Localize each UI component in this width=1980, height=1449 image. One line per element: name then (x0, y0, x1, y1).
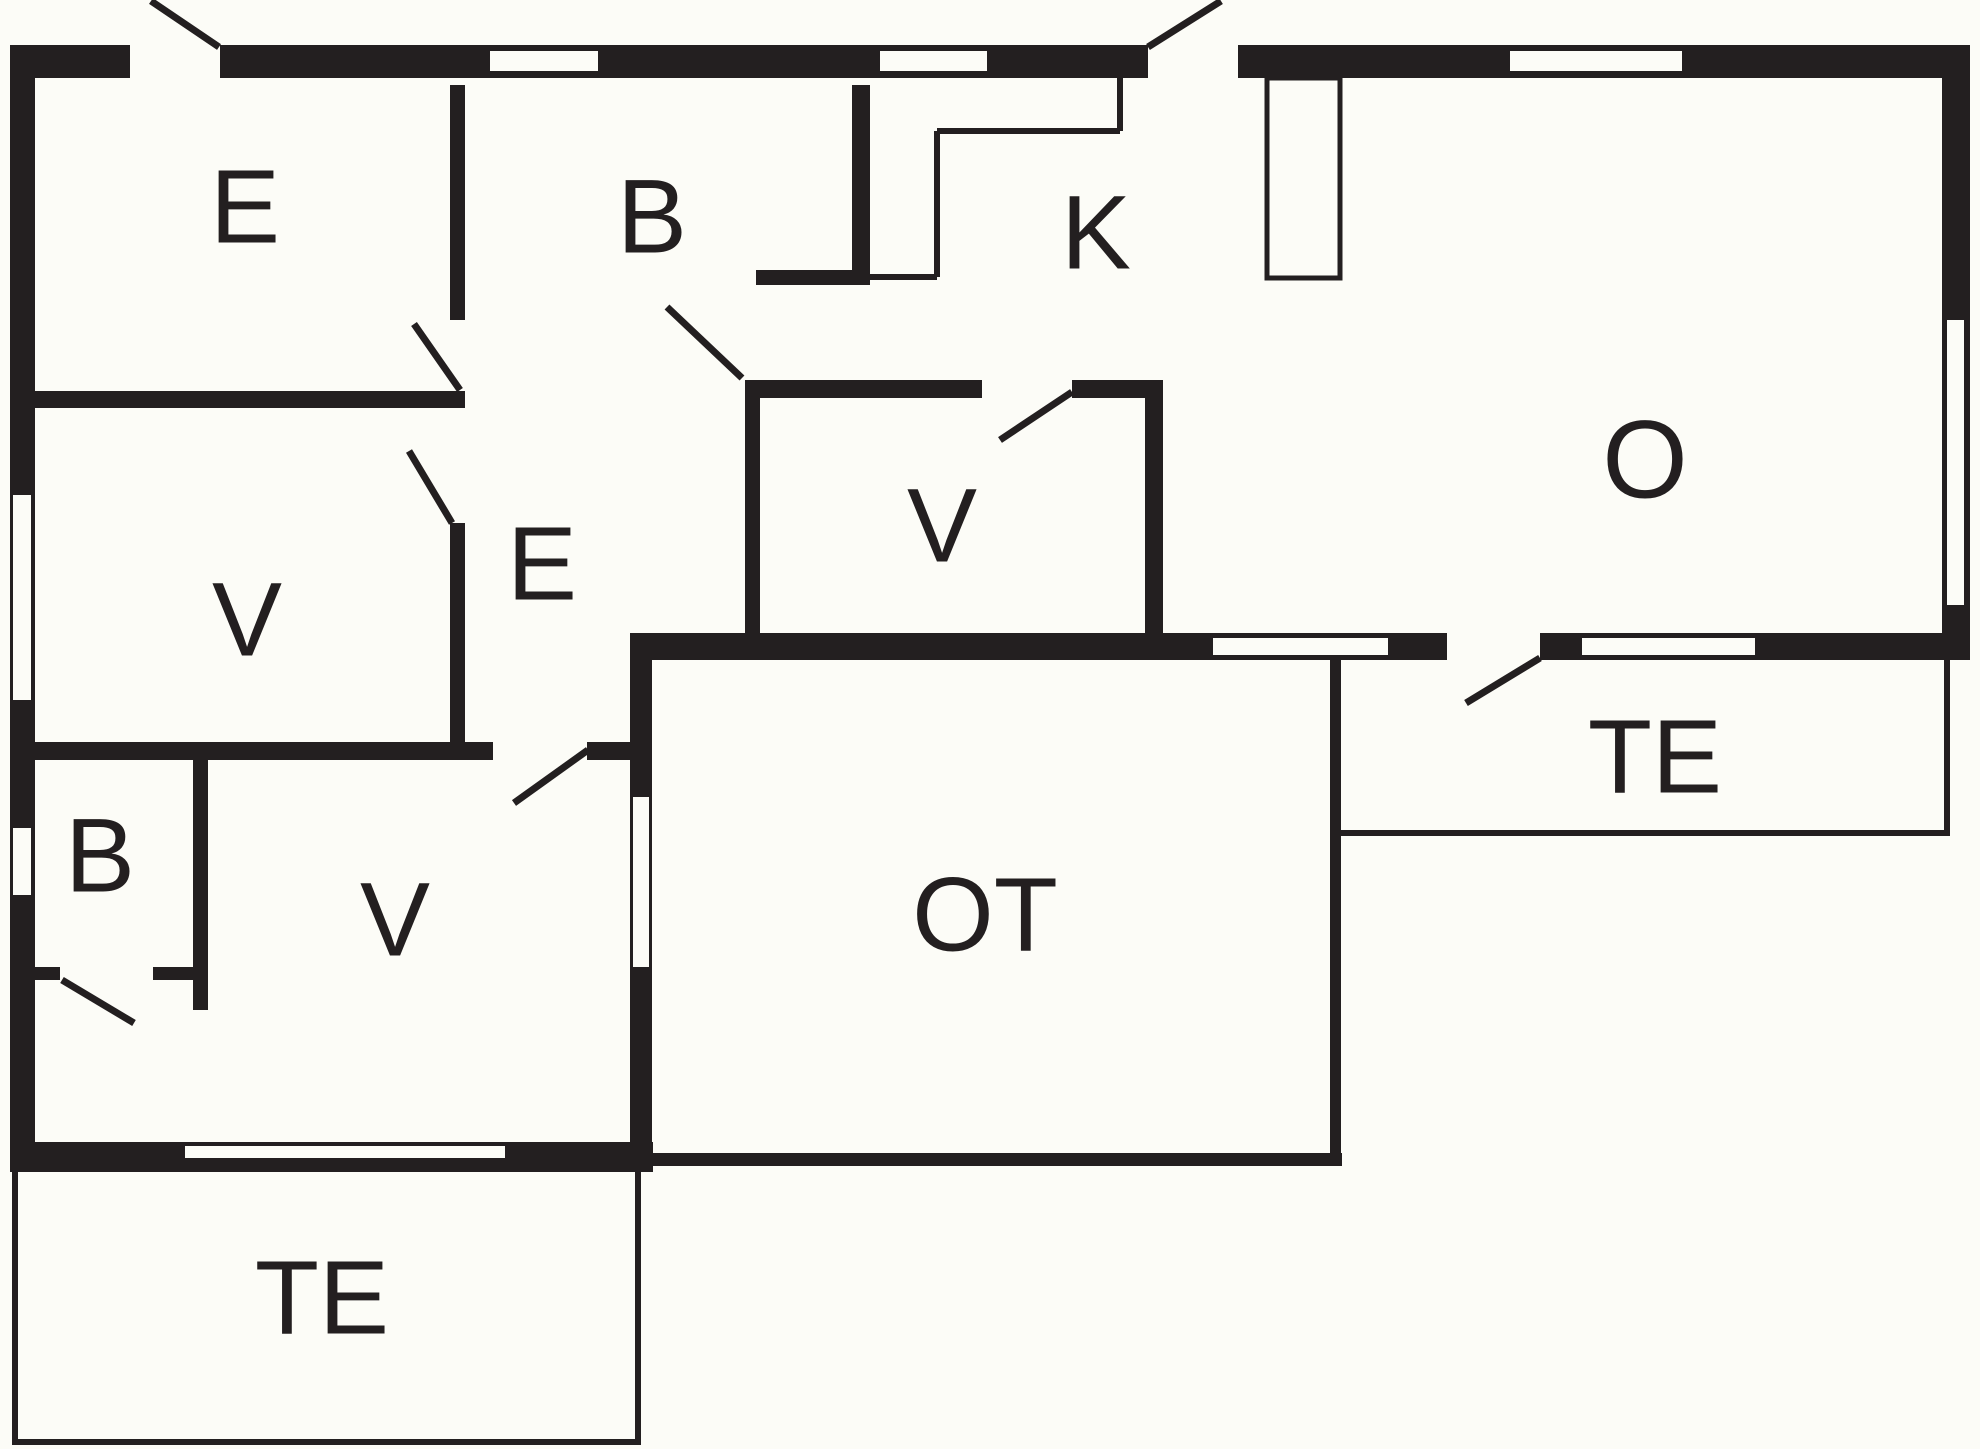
wall-segment (745, 380, 760, 633)
room-label-living-room: O (1602, 399, 1688, 522)
wall-segment (450, 523, 465, 742)
floorplan-page: EBKOVEVTEBVOTTE (0, 0, 1980, 1449)
window (1947, 320, 1964, 605)
window (490, 51, 598, 71)
wall-segment (745, 380, 982, 398)
room-label-bath-top: B (617, 159, 687, 276)
wall-segment (1145, 380, 1163, 633)
kitchen-island-counter (1267, 78, 1340, 278)
room-label-entrance-top: E (210, 149, 280, 266)
wall-segment (220, 45, 1148, 78)
room-label-bedroom-bottom: V (360, 862, 430, 979)
wall-segment (852, 85, 870, 285)
wall-segment (1330, 660, 1341, 1166)
wall-segment (25, 742, 493, 760)
wall-segment (652, 1153, 1342, 1166)
window (13, 495, 31, 700)
wall-segment (756, 270, 870, 285)
window (1510, 51, 1682, 71)
room-label-terrace-right: TE (1588, 699, 1722, 816)
room-label-terrace-bottom: TE (255, 1240, 389, 1357)
room-label-bath-bottom: B (65, 798, 135, 915)
room-label-bedroom-mid: V (907, 468, 977, 585)
floorplan-drawing: EBKOVEVTEBVOTTE (0, 0, 1980, 1449)
window (1213, 638, 1388, 655)
window (1582, 638, 1755, 655)
window (880, 51, 987, 71)
wall-segment (25, 391, 465, 408)
room-label-hallway: E (507, 506, 577, 623)
window (185, 1146, 505, 1158)
window (633, 797, 649, 967)
wall-segment (28, 967, 60, 980)
room-label-outbuilding: OT (912, 857, 1058, 974)
room-label-kitchen: K (1061, 175, 1131, 292)
wall-segment (153, 967, 208, 980)
room-label-bedroom-left: V (212, 562, 282, 679)
wall-segment (450, 85, 465, 320)
wall-segment (587, 742, 645, 760)
window (13, 828, 31, 895)
